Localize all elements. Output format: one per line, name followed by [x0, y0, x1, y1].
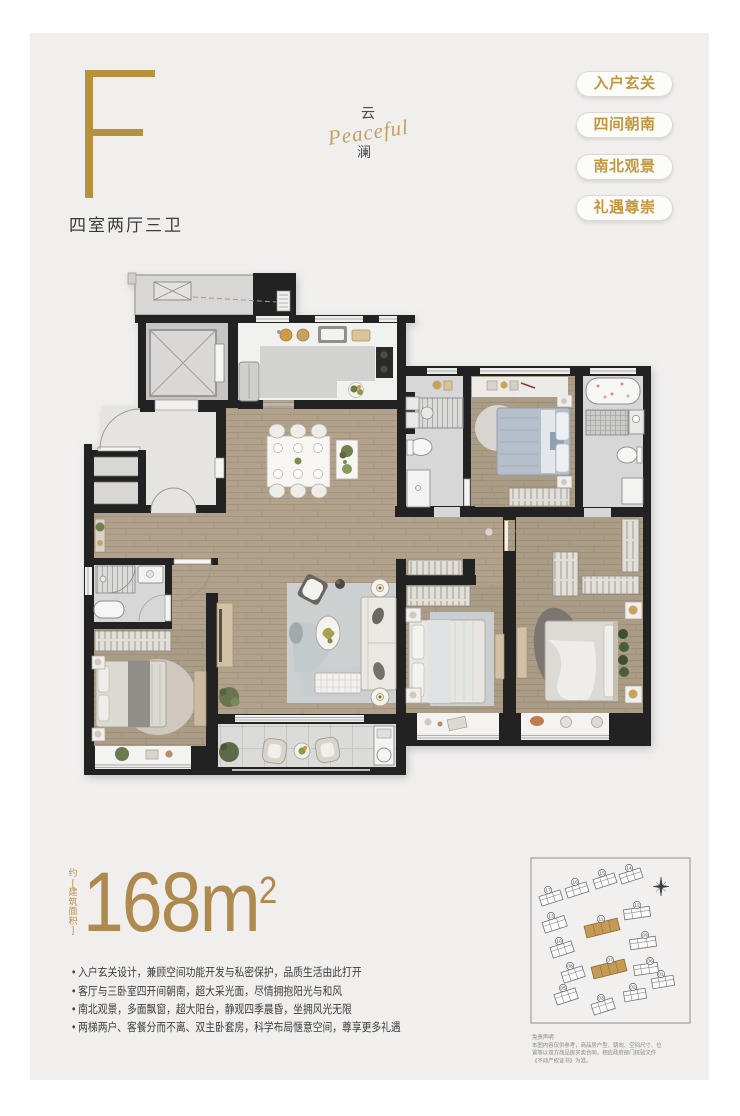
svg-text:15: 15 — [599, 871, 605, 877]
svg-text:13: 13 — [548, 914, 554, 920]
svg-text:17: 17 — [545, 888, 551, 894]
svg-text:11: 11 — [599, 917, 604, 923]
svg-text:12: 12 — [634, 903, 640, 909]
svg-text:03: 03 — [598, 996, 604, 1002]
svg-text:08: 08 — [567, 964, 573, 970]
svg-text:07: 07 — [607, 958, 613, 964]
svg-text:06: 06 — [647, 959, 653, 965]
svg-text:10: 10 — [556, 939, 562, 945]
svg-text:01: 01 — [658, 972, 664, 978]
svg-text:09: 09 — [642, 933, 648, 939]
svg-text:02: 02 — [630, 985, 636, 991]
svg-text:14: 14 — [626, 866, 632, 872]
svg-text:05: 05 — [560, 986, 566, 992]
svg-text:16: 16 — [572, 880, 578, 886]
